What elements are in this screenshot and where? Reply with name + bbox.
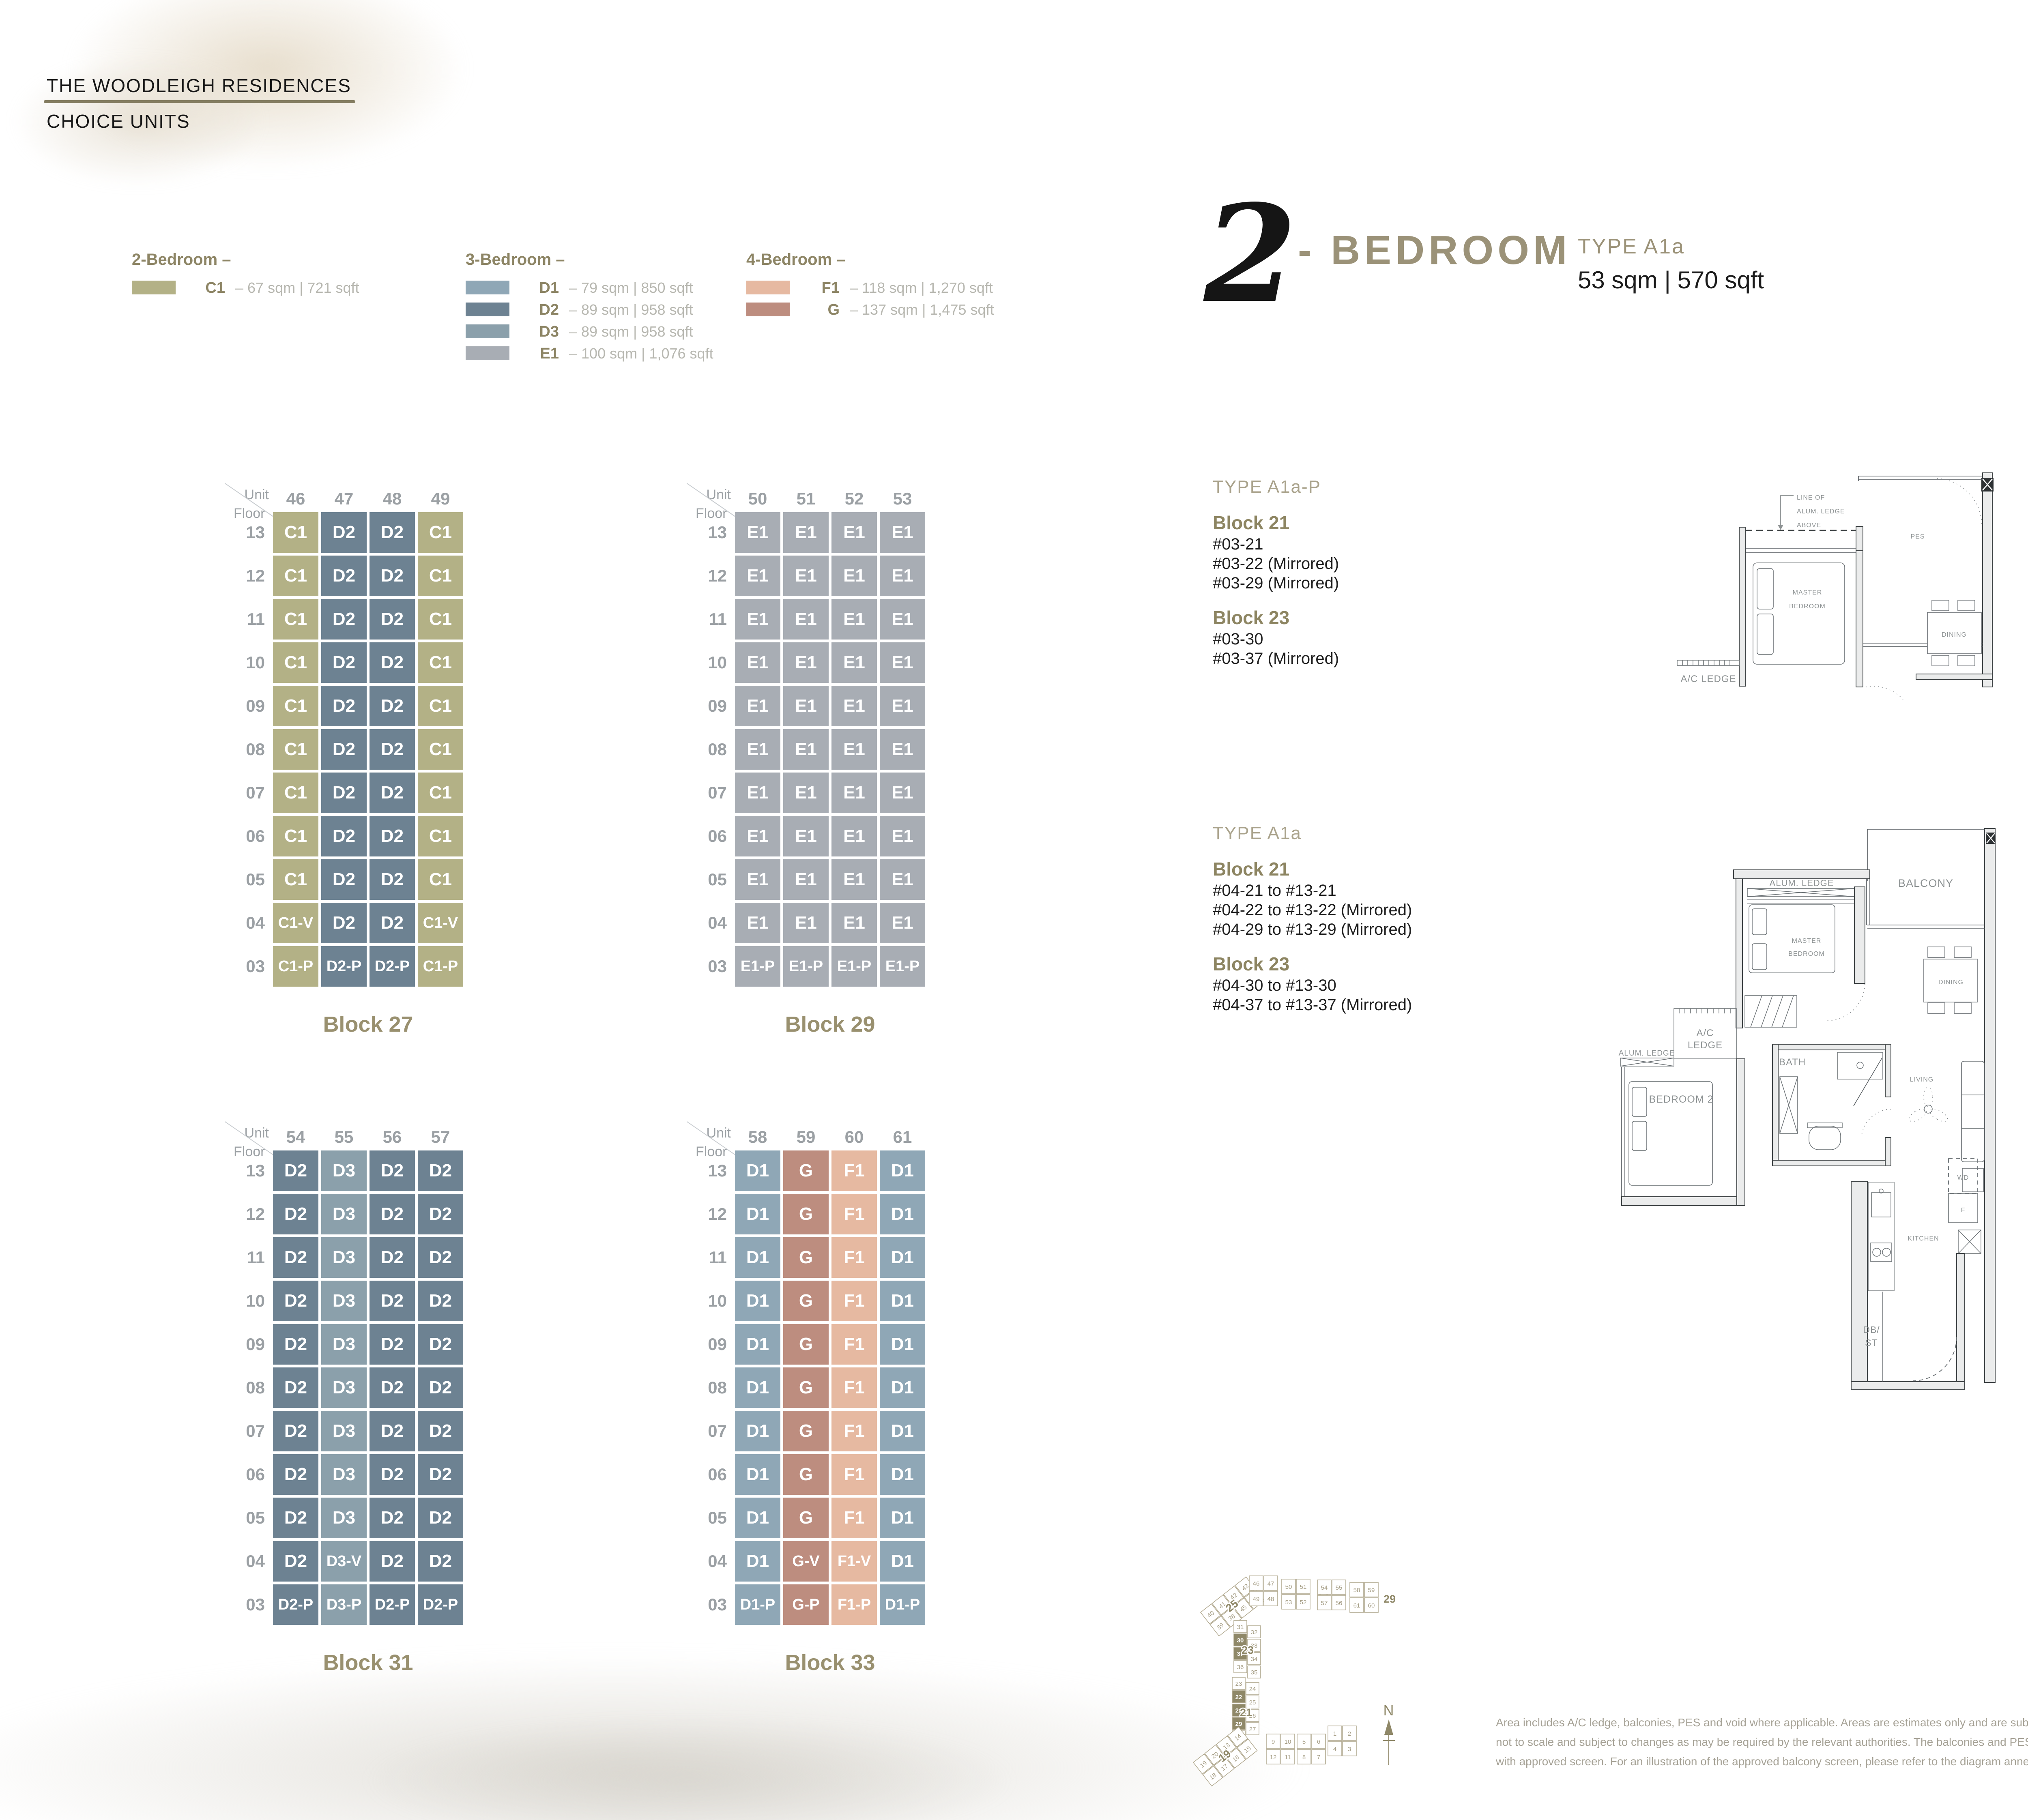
grid-cell: D3 (321, 1324, 367, 1365)
grid-cell: D2 (418, 1194, 463, 1234)
grid-cell: D2 (321, 642, 367, 683)
legend-desc: – 100 sqm | 1,076 sqft (569, 346, 713, 361)
grid-cell: D3-P (321, 1584, 367, 1625)
db-st-label: DB/ (1863, 1324, 1880, 1335)
grid-cell: D2-P (370, 1584, 415, 1625)
grid-cell: E1 (783, 642, 829, 683)
grid-cell: E1 (735, 642, 780, 683)
ac-ledge-label: A/C LEDGE (1680, 674, 1736, 685)
legend-desc: – 79 sqm | 850 sqft (569, 281, 693, 295)
legend-code: D1 (526, 281, 559, 295)
legend-group-title: 4-Bedroom – (746, 251, 846, 269)
legend-swatch-d3 (466, 324, 509, 338)
grid-cell: C1 (418, 512, 463, 553)
svg-text:8: 8 (1302, 1754, 1306, 1761)
grid-cell: F1 (831, 1367, 877, 1408)
svg-text:24: 24 (1249, 1686, 1256, 1693)
dining-label: DINING (1942, 631, 1967, 638)
grid-cell: C1 (418, 686, 463, 726)
legend-code: G (807, 303, 840, 317)
grid-cell: D2 (321, 729, 367, 770)
grid-cell: E1 (783, 859, 829, 900)
alum-ledge-label: ALUM. LEDGE (1770, 878, 1834, 888)
grid-cell: D1 (735, 1454, 780, 1495)
grid-cell: E1 (831, 903, 877, 943)
grid-cell: D2 (321, 903, 367, 943)
legend-desc: – 118 sqm | 1,270 sqft (850, 281, 993, 295)
floor-label: 13 (204, 512, 265, 553)
grid-cell: F1 (831, 1150, 877, 1191)
grid-cell: G (783, 1281, 829, 1321)
column-header: 61 (880, 1127, 925, 1147)
legend-group-title: 3-Bedroom – (466, 251, 565, 269)
balcony-label: BALCONY (1898, 877, 1953, 889)
legend-desc: – 89 sqm | 958 sqft (569, 303, 693, 317)
grid-cell: D1 (880, 1541, 925, 1582)
grid-cell: F1 (831, 1498, 877, 1538)
grid-cell: C1 (273, 729, 318, 770)
grid-cell: D2 (321, 512, 367, 553)
grid-cell: D1 (880, 1194, 925, 1234)
site-block-label: 29 (1384, 1593, 1396, 1605)
legend-code: F1 (807, 281, 840, 295)
grid-cell: D2 (273, 1541, 318, 1582)
site-block-label: 21 (1240, 1706, 1252, 1719)
floor-label: 12 (666, 556, 727, 596)
grid-cell: C1 (273, 773, 318, 813)
grid-cell: D2 (273, 1194, 318, 1234)
grid-cell: D1 (880, 1454, 925, 1495)
living-label: LIVING (1910, 1076, 1933, 1083)
floor-label: 08 (666, 729, 727, 770)
stack-block-name: Block 21 (1213, 512, 1289, 534)
ceiling-fan-icon (1907, 1087, 1950, 1124)
floor-label: 08 (204, 729, 265, 770)
bedroom2-label: BEDROOM 2 (1649, 1094, 1713, 1105)
stack-unit-line: #03-22 (Mirrored) (1213, 555, 1339, 573)
watercolor-wash-bottom (0, 1655, 1306, 1820)
grid-cell: D2 (370, 686, 415, 726)
legend-swatch-g (746, 303, 790, 316)
grid-cell: C1-V (418, 903, 463, 943)
block-caption: Block 33 (735, 1650, 925, 1675)
grid-cell: D2 (418, 1324, 463, 1365)
grid-cell: E1 (783, 599, 829, 640)
stack-unit-line: #03-21 (1213, 535, 1263, 554)
grid-cell: F1 (831, 1411, 877, 1451)
grid-cell: E1 (880, 816, 925, 856)
grid-cell: D3 (321, 1281, 367, 1321)
svg-text:35: 35 (1251, 1669, 1258, 1676)
floor-label: 11 (666, 1237, 727, 1278)
grid-cell: D1 (735, 1411, 780, 1451)
grid-cell: D2 (273, 1324, 318, 1365)
stack-unit-line: #04-21 to #13-21 (1213, 882, 1336, 900)
door-arc-icon (1937, 479, 1982, 527)
svg-text:23: 23 (1235, 1680, 1242, 1687)
door-arc-icon (1862, 1109, 1891, 1135)
disclaimer-line: with approved screen. For an illustratio… (1496, 1755, 2028, 1768)
grid-cell: D3 (321, 1367, 367, 1408)
site-cluster-13: 124313 (1328, 1726, 1452, 1801)
vanity-icon (1837, 1052, 1883, 1079)
grid-cell: E1 (880, 729, 925, 770)
grid-cell: G (783, 1367, 829, 1408)
column-header: 58 (735, 1127, 780, 1147)
grid-cell: C1 (418, 816, 463, 856)
floor-label: 08 (204, 1367, 265, 1408)
floor-label: 04 (204, 903, 265, 943)
sofa-icon (1961, 1061, 1984, 1192)
floor-label: 06 (204, 816, 265, 856)
svg-text:49: 49 (1253, 1596, 1260, 1603)
entry-door-arc-icon (1913, 1337, 1957, 1381)
grid-cell: E1 (831, 729, 877, 770)
grid-cell: E1 (831, 556, 877, 596)
north-arrow: N (1383, 1702, 1395, 1765)
svg-text:31: 31 (1237, 1624, 1244, 1631)
grid-cell: E1 (735, 903, 780, 943)
brand-title: THE WOODLEIGH RESIDENCES (47, 75, 351, 97)
grid-cell: D2 (418, 1281, 463, 1321)
grid-cell: D2 (273, 1367, 318, 1408)
svg-text:9: 9 (1272, 1738, 1275, 1745)
grid-cell: E1-P (880, 946, 925, 987)
floor-label: 08 (666, 1367, 727, 1408)
column-header: 57 (418, 1127, 463, 1147)
grid-cell: D2 (418, 1367, 463, 1408)
grid-cell: E1 (831, 859, 877, 900)
grid-cell: E1-P (831, 946, 877, 987)
svg-text:27: 27 (1249, 1726, 1256, 1733)
svg-text:2: 2 (1348, 1730, 1351, 1737)
grid-cell: D2-P (321, 946, 367, 987)
floor-label: 09 (666, 1324, 727, 1365)
grid-cell: E1 (783, 556, 829, 596)
floor-label: 07 (204, 773, 265, 813)
grid-cell: D2 (370, 599, 415, 640)
grid-cell: E1 (735, 859, 780, 900)
grid-cell: D2 (418, 1454, 463, 1495)
grid-cell: E1 (783, 903, 829, 943)
grid-cell: D1 (880, 1411, 925, 1451)
site-cluster-19: 192013141817161519 (1193, 1727, 1257, 1786)
svg-text:59: 59 (1368, 1587, 1375, 1594)
grid-cell: F1 (831, 1454, 877, 1495)
svg-text:51: 51 (1300, 1584, 1307, 1590)
grid-cell: D2 (370, 642, 415, 683)
grid-cell: G (783, 1324, 829, 1365)
floorplan-a1a: BALCONY ALUM. LEDGE MASTER BEDROOM A/C L… (1618, 825, 2028, 1450)
column-header: 47 (321, 489, 367, 509)
toilet-icon (1807, 1123, 1842, 1150)
grid-cell: D1 (735, 1237, 780, 1278)
floorplan-a1a-p: PES MASTER BEDROOM DINING A/C LEDGE LINE… (1675, 466, 2028, 702)
grid-cell: D2 (370, 903, 415, 943)
grid-cell: G (783, 1194, 829, 1234)
type-heading: TYPE A1a-P (1213, 477, 1321, 497)
floor-label: 05 (204, 859, 265, 900)
grid-cell: E1-P (783, 946, 829, 987)
grid-cell: D1-P (735, 1584, 780, 1625)
grid-cell: D2 (370, 1454, 415, 1495)
floor-label: 13 (666, 1150, 727, 1191)
master-bedroom-label: MASTER (1793, 589, 1822, 596)
floor-label: 04 (204, 1541, 265, 1582)
column-header: 51 (783, 489, 829, 509)
floor-label: 09 (666, 686, 727, 726)
svg-text:BEDROOM: BEDROOM (1788, 951, 1825, 957)
watercolor-wash-bottom-2 (365, 1719, 1014, 1820)
grid-cell: E1 (735, 773, 780, 813)
grid-cell: E1 (880, 686, 925, 726)
floor-label: 07 (666, 1411, 727, 1451)
grid-cell: D2 (370, 1367, 415, 1408)
svg-text:7: 7 (1317, 1754, 1320, 1761)
grid-cell: G (783, 1498, 829, 1538)
axis-unit-label: Unit (666, 1125, 731, 1141)
legend-swatch-f1 (746, 281, 790, 294)
legend-code: D3 (526, 324, 559, 339)
floor-label: 13 (204, 1150, 265, 1191)
floor-label: 12 (204, 556, 265, 596)
grid-cell: D2-P (273, 1584, 318, 1625)
stack-block-name: Block 23 (1213, 953, 1289, 975)
column-header: 48 (370, 489, 415, 509)
fridge-label: F (1961, 1207, 1966, 1214)
block-caption: Block 31 (273, 1650, 463, 1675)
svg-text:47: 47 (1267, 1580, 1274, 1587)
grid-cell: C1 (418, 729, 463, 770)
grid-cell: F1 (831, 1324, 877, 1365)
stack-unit-line: #04-30 to #13-30 (1213, 977, 1336, 995)
grid-cell: D2 (273, 1281, 318, 1321)
grid-cell: C1 (273, 512, 318, 553)
svg-text:50: 50 (1285, 1584, 1292, 1590)
grid-cell: F1-P (831, 1584, 877, 1625)
bed-icon (1753, 563, 1845, 664)
legend-swatch-d1 (466, 281, 509, 294)
svg-text:55: 55 (1336, 1584, 1343, 1591)
grid-cell: C1 (418, 773, 463, 813)
grid-cell: C1 (273, 816, 318, 856)
floor-label: 09 (204, 1324, 265, 1365)
grid-cell: D1 (735, 1281, 780, 1321)
pes-label: PES (1910, 533, 1925, 540)
door-arc-icon (1866, 686, 1903, 700)
svg-text:ALUM. LEDGE: ALUM. LEDGE (1797, 508, 1845, 515)
site-block-label: 23 (1242, 1644, 1254, 1656)
grid-cell: C1-V (273, 903, 318, 943)
legend-desc: – 89 sqm | 958 sqft (569, 324, 693, 339)
grid-cell: D2 (273, 1150, 318, 1191)
svg-text:LEDGE: LEDGE (1688, 1040, 1723, 1051)
svg-text:11: 11 (1285, 1754, 1291, 1761)
svg-text:25: 25 (1249, 1699, 1256, 1706)
grid-cell: G-V (783, 1541, 829, 1582)
floor-label: 05 (204, 1498, 265, 1538)
column-header: 46 (273, 489, 318, 509)
grid-cell: D2 (370, 1281, 415, 1321)
grid-cell: E1 (735, 686, 780, 726)
legend-desc: – 67 sqm | 721 sqft (235, 281, 359, 295)
stack-unit-line: #04-22 to #13-22 (Mirrored) (1213, 901, 1412, 919)
kitchen-counter-icon (1868, 1182, 1894, 1291)
grid-cell: D2-P (418, 1584, 463, 1625)
grid-cell: D3 (321, 1194, 367, 1234)
stack-block-name: Block 21 (1213, 858, 1289, 880)
plan-wall (1983, 473, 1992, 687)
axis-unit-label: Unit (666, 487, 731, 503)
floor-label: 03 (666, 1584, 727, 1625)
grid-cell: D2 (370, 556, 415, 596)
grid-cell: D2 (273, 1411, 318, 1451)
block-caption: Block 29 (735, 1012, 925, 1037)
floor-label: 06 (666, 816, 727, 856)
floor-label: 10 (204, 642, 265, 683)
column-header: 52 (831, 489, 877, 509)
svg-text:34: 34 (1251, 1656, 1258, 1663)
grid-cell: D2 (321, 556, 367, 596)
grid-cell: C1 (418, 642, 463, 683)
grid-cell: D2 (273, 1498, 318, 1538)
bedroom-title: - BEDROOM (1298, 227, 1571, 274)
floor-label: 06 (666, 1454, 727, 1495)
legend-code: D2 (526, 303, 559, 317)
grid-cell: E1 (783, 512, 829, 553)
site-cluster-33: 5859616033 (1350, 1582, 1452, 1612)
grid-cell: D1-P (880, 1584, 925, 1625)
grid-cell: D2 (370, 1150, 415, 1191)
grid-cell: D1 (880, 1150, 925, 1191)
grid-cell: D3 (321, 1150, 367, 1191)
grid-cell: D3 (321, 1411, 367, 1451)
svg-text:56: 56 (1336, 1600, 1343, 1607)
column-header: 60 (831, 1127, 877, 1147)
grid-cell: D2 (418, 1411, 463, 1451)
stack-unit-line: #03-29 (Mirrored) (1213, 574, 1339, 592)
svg-text:61: 61 (1353, 1602, 1360, 1609)
grid-cell: D2 (370, 1541, 415, 1582)
grid-cell: F1 (831, 1194, 877, 1234)
legend-desc: – 137 sqm | 1,475 sqft (850, 303, 994, 317)
grid-cell: D2 (370, 1194, 415, 1234)
grid-cell: D1 (735, 1498, 780, 1538)
floor-label: 03 (666, 946, 727, 987)
floor-label: 03 (204, 1584, 265, 1625)
floor-label: 03 (204, 946, 265, 987)
grid-cell: D3 (321, 1498, 367, 1538)
grid-cell: C1-P (273, 946, 318, 987)
svg-text:ABOVE: ABOVE (1797, 522, 1821, 529)
site-cluster-23: 313037363233343523 (1234, 1620, 1261, 1678)
svg-text:52: 52 (1300, 1599, 1307, 1606)
grid-cell: F1 (831, 1237, 877, 1278)
grid-cell: D2 (370, 1411, 415, 1451)
grid-cell: E1 (735, 816, 780, 856)
grid-cell: C1 (418, 859, 463, 900)
grid-cell: D2 (418, 1237, 463, 1278)
grid-cell: E1 (783, 773, 829, 813)
site-cluster-15: 568715 (1297, 1734, 1426, 1801)
svg-text:48: 48 (1267, 1596, 1274, 1603)
stack-unit-line: #03-37 (Mirrored) (1213, 650, 1339, 668)
bedroom-count-numeral: 2 (1204, 191, 1297, 318)
floor-label: 05 (666, 1498, 727, 1538)
grid-cell: E1 (831, 512, 877, 553)
grid-cell: E1-P (735, 946, 780, 987)
floor-label: 12 (666, 1194, 727, 1234)
floor-label: 10 (204, 1281, 265, 1321)
grid-cell: D2 (273, 1237, 318, 1278)
floor-label: 05 (666, 859, 727, 900)
grid-cell: D3 (321, 1454, 367, 1495)
svg-text:30: 30 (1237, 1637, 1244, 1644)
grid-cell: D1 (735, 1367, 780, 1408)
grid-cell: E1 (880, 512, 925, 553)
legend-swatch-d2 (466, 303, 509, 316)
stack-unit-line: #04-37 to #13-37 (Mirrored) (1213, 996, 1412, 1014)
grid-cell: E1 (880, 773, 925, 813)
legend-group-title: 2-Bedroom – (132, 251, 231, 269)
master-bedroom-label: MASTER (1792, 938, 1822, 944)
grid-cell: D1 (735, 1324, 780, 1365)
column-header: 53 (880, 489, 925, 509)
grid-cell: C1 (418, 556, 463, 596)
arrow-icon (1778, 525, 1783, 530)
grid-cell: C1 (273, 686, 318, 726)
unit-type-label: TYPE A1a (1578, 234, 1685, 259)
grid-cell: D1 (880, 1367, 925, 1408)
floor-label: 09 (204, 686, 265, 726)
page-subtitle: CHOICE UNITS (47, 110, 190, 132)
grid-cell: C1 (273, 599, 318, 640)
grid-cell: D2 (370, 1324, 415, 1365)
grid-cell: C1 (273, 556, 318, 596)
site-key-map: N 40414243393845442546474948275051535229… (1188, 1573, 1452, 1801)
grid-cell: D2 (370, 1237, 415, 1278)
grid-cell: E1 (831, 642, 877, 683)
grid-cell: E1 (880, 903, 925, 943)
dining-label: DINING (1938, 979, 1964, 986)
grid-cell: D2 (370, 1498, 415, 1538)
grid-cell: E1 (735, 599, 780, 640)
floor-label: 10 (666, 642, 727, 683)
grid-cell: D2 (321, 859, 367, 900)
grid-cell: G (783, 1411, 829, 1451)
svg-text:BEDROOM: BEDROOM (1789, 603, 1826, 610)
grid-cell: D1 (880, 1281, 925, 1321)
svg-text:29: 29 (1235, 1721, 1242, 1728)
grid-cell: D2 (370, 859, 415, 900)
grid-cell: D2 (370, 773, 415, 813)
floor-label: 13 (666, 512, 727, 553)
svg-text:46: 46 (1253, 1580, 1260, 1587)
legend-code: E1 (526, 346, 559, 361)
svg-text:ST: ST (1865, 1337, 1878, 1348)
grid-cell: D1 (735, 1541, 780, 1582)
grid-cell: D2 (370, 729, 415, 770)
grid-cell: G (783, 1237, 829, 1278)
axis-unit-label: Unit (204, 487, 269, 503)
floor-label: 11 (666, 599, 727, 640)
alum-ledge-left-label: ALUM. LEDGE (1619, 1049, 1675, 1058)
grid-cell: C1 (273, 642, 318, 683)
floor-label: 07 (204, 1411, 265, 1451)
disclaimer-line: not to scale and subject to changes as m… (1496, 1736, 2028, 1749)
svg-text:6: 6 (1317, 1738, 1320, 1745)
grid-cell: E1 (880, 859, 925, 900)
